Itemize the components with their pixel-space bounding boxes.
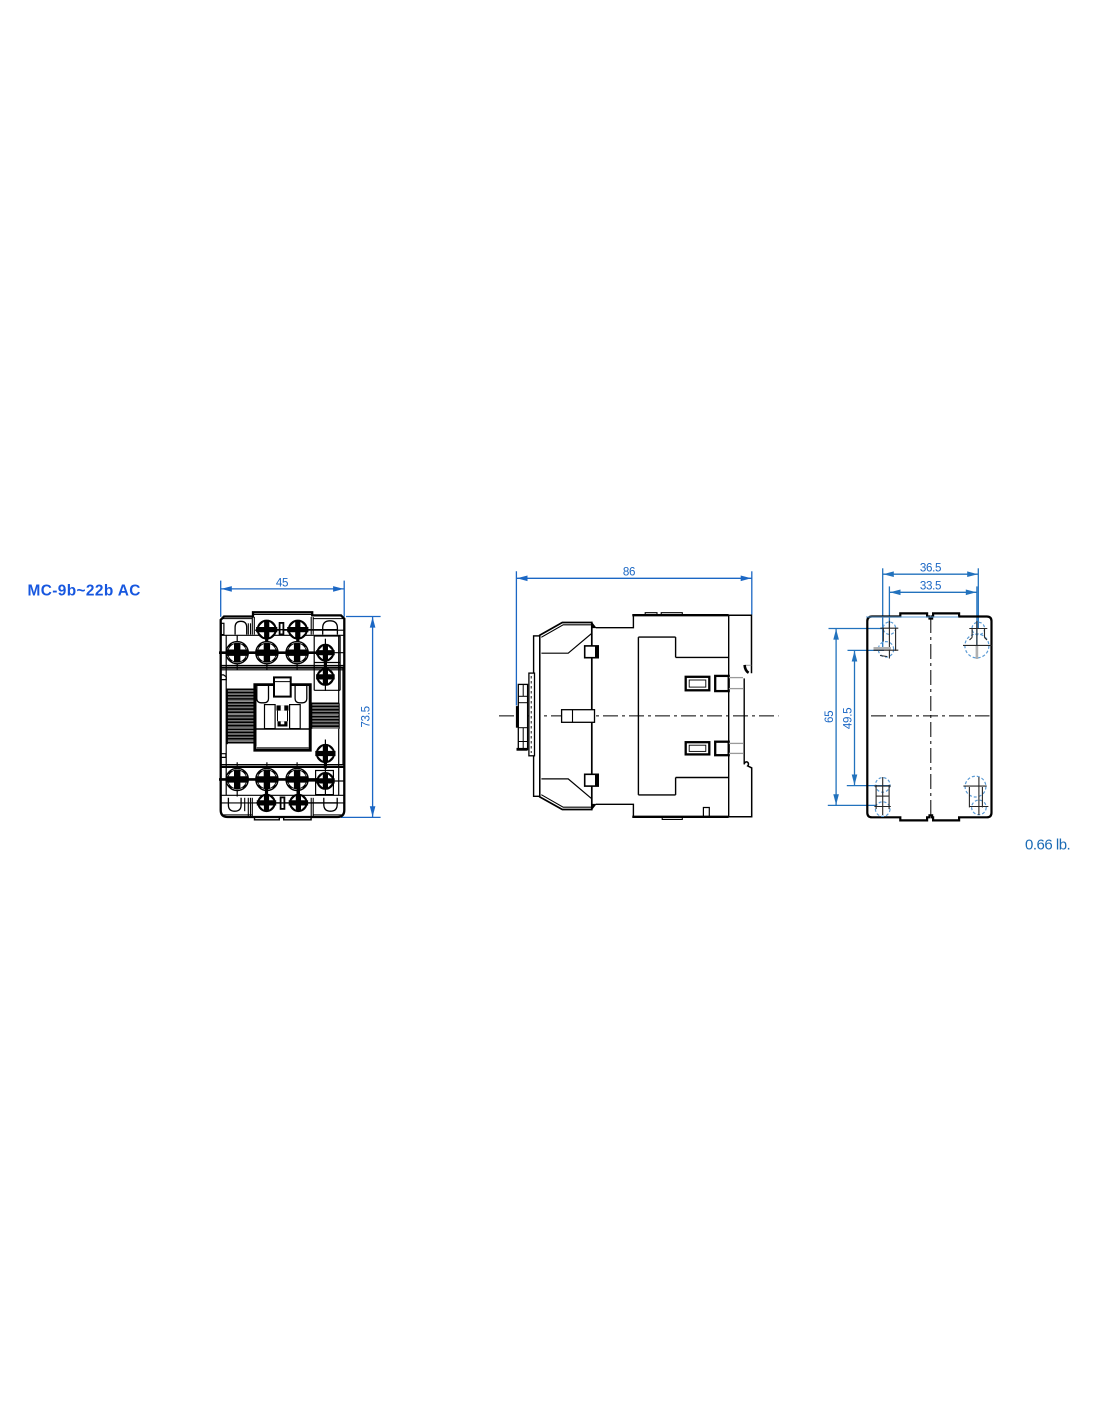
svg-text:33.5: 33.5 — [920, 580, 941, 593]
svg-text:49.5: 49.5 — [842, 708, 855, 729]
svg-text:73.5: 73.5 — [360, 706, 373, 727]
svg-text:0.66 lb.: 0.66 lb. — [1025, 836, 1070, 853]
svg-text:65: 65 — [823, 711, 836, 723]
svg-text:MC-9b~22b AC: MC-9b~22b AC — [28, 582, 141, 599]
svg-text:45: 45 — [276, 576, 288, 589]
svg-text:36.5: 36.5 — [920, 561, 941, 574]
svg-text:86: 86 — [623, 566, 635, 579]
